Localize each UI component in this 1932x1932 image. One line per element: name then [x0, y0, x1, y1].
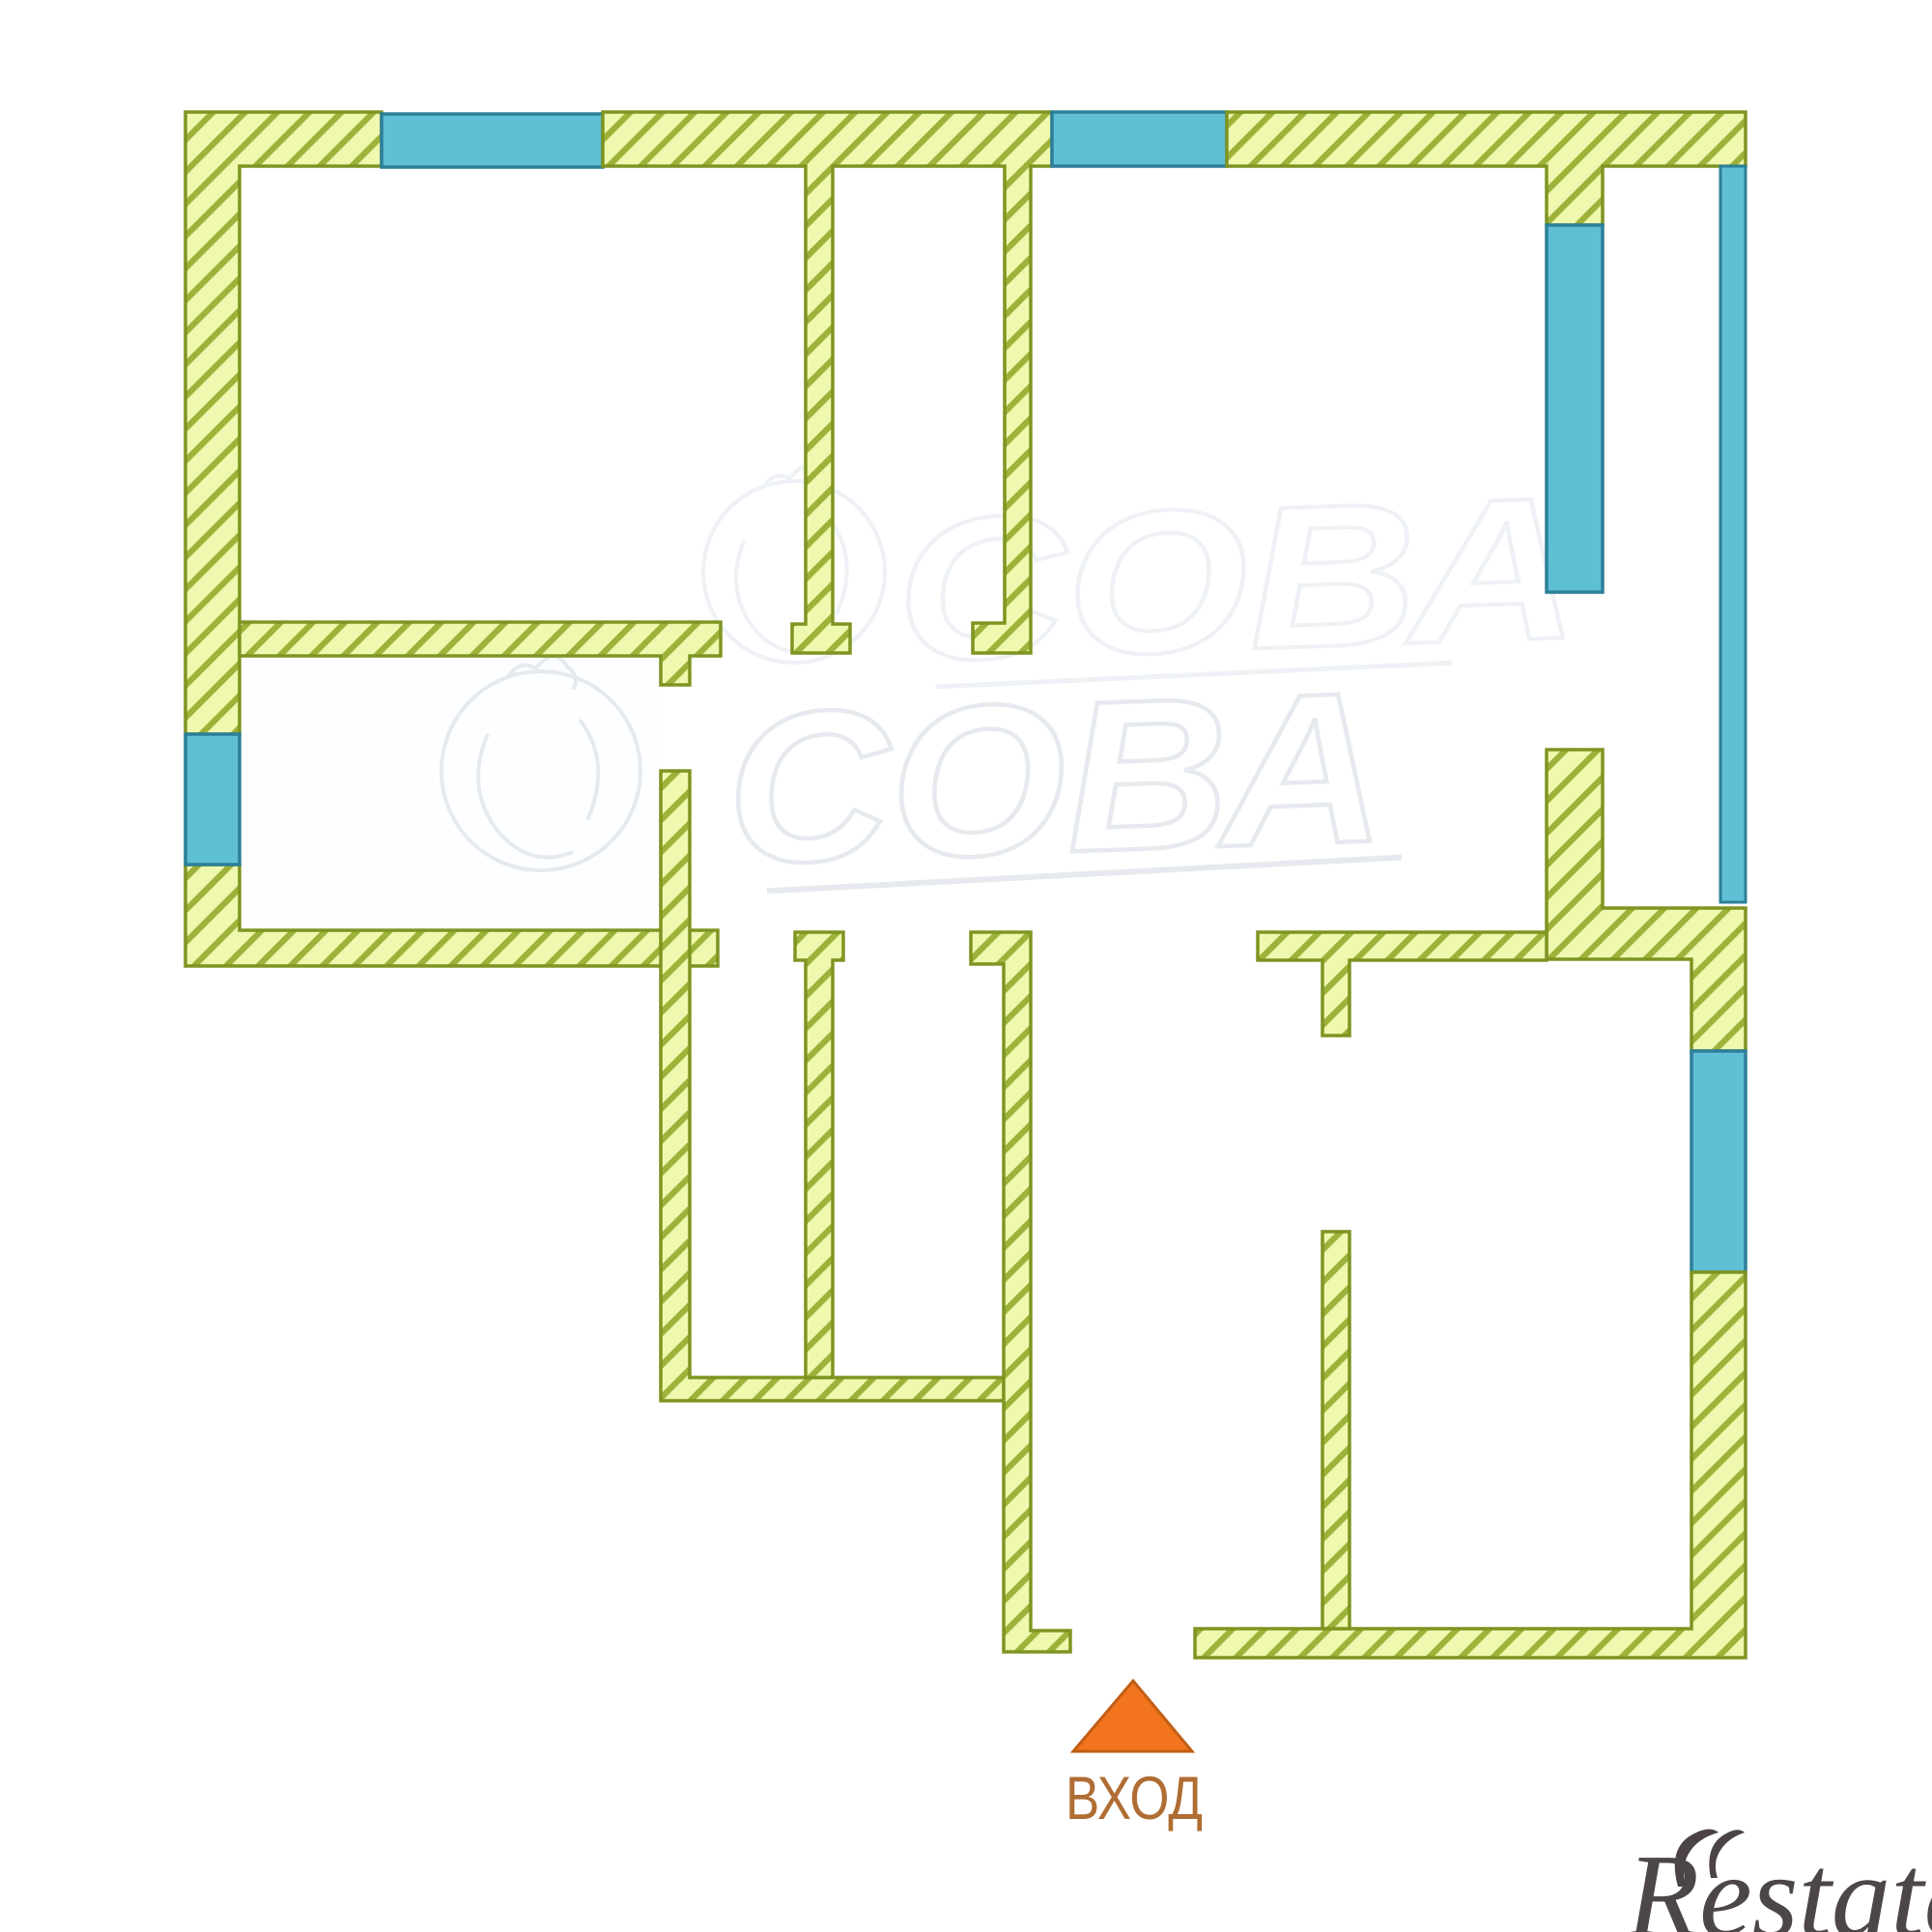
svg-text:Restate: Restate	[1626, 1830, 1932, 1932]
svg-text:ВХОД: ВХОД	[1065, 1765, 1203, 1833]
svg-text:СОВА: СОВА	[723, 647, 1387, 910]
